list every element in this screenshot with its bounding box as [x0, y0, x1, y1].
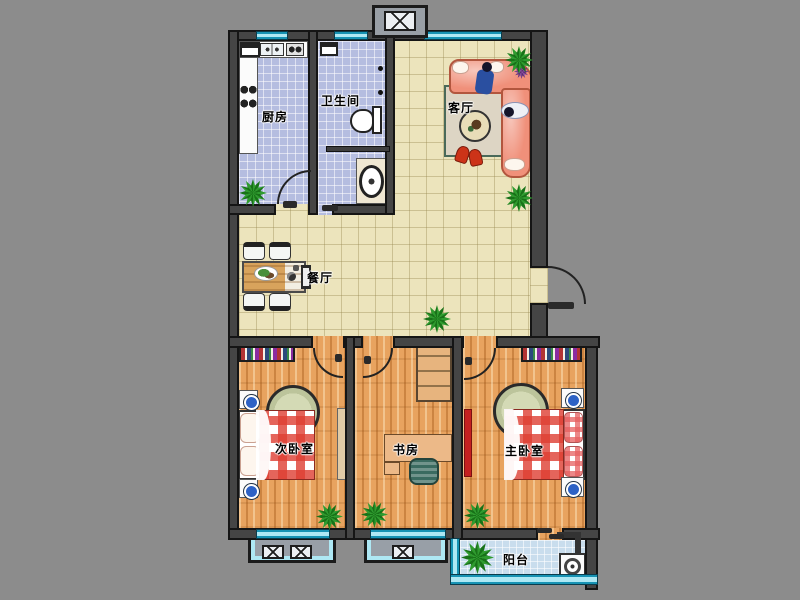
living-room-label: 客厅 — [448, 99, 474, 116]
nightstand — [561, 477, 584, 497]
wall-bath-living-divider — [385, 30, 395, 215]
sofa-pillow — [504, 158, 525, 171]
towel-hook-icon — [378, 90, 383, 95]
second-bedroom-label: 次卧室 — [275, 440, 314, 457]
wall-kitchen-south — [228, 204, 276, 215]
kitchen-window — [256, 31, 288, 40]
wall-right-upper — [530, 30, 548, 268]
balcony-window-south — [450, 574, 598, 585]
bathroom-label: 卫生间 — [321, 92, 360, 109]
wall-right-lower — [585, 336, 598, 590]
balcony-slider-leaf — [537, 528, 552, 533]
study-wardrobe — [416, 344, 452, 402]
bath-cabinet-icon — [320, 42, 338, 56]
bed-pillow — [564, 446, 583, 477]
wall-bedroom-divider-2 — [452, 336, 463, 540]
office-chair-icon — [409, 458, 439, 485]
toilet-bowl-icon — [350, 109, 374, 133]
bathroom-window — [334, 31, 368, 40]
wall-left — [228, 30, 239, 540]
entry-door-gap — [530, 268, 548, 303]
nightstand — [239, 479, 258, 498]
balcony-slider-leaf — [549, 534, 564, 539]
teapot-icon — [287, 272, 296, 281]
flue-symbol-icon — [384, 11, 416, 31]
range-hood-icon — [240, 42, 260, 57]
dining-room-label: 餐厅 — [307, 269, 333, 286]
wall-bath-partition — [326, 146, 390, 152]
dining-chair — [269, 293, 291, 311]
washing-machine-door — [564, 558, 581, 575]
person-head — [482, 62, 492, 72]
sofa-pillow — [452, 61, 469, 74]
towel-hook-icon — [378, 66, 383, 71]
person-head — [504, 107, 514, 117]
master-bedroom-label: 主卧室 — [505, 442, 544, 459]
red-cabinet — [464, 409, 472, 477]
study-door-handle — [364, 356, 371, 364]
ac-platform-icon — [392, 545, 414, 559]
nightstand — [561, 388, 584, 408]
wall-bedroom-divider-1 — [345, 336, 355, 540]
person-figure — [474, 69, 494, 95]
kitchen-label: 厨房 — [262, 108, 288, 125]
dining-chair — [243, 293, 265, 311]
ac-platform-icon — [262, 545, 284, 559]
entry-door-arc — [548, 266, 586, 304]
living-window — [424, 31, 502, 40]
bathroom-door-leaf — [322, 205, 338, 211]
study-window — [370, 529, 446, 539]
bed-pillow — [564, 412, 583, 443]
clock-icon — [566, 393, 581, 408]
gas-burner-icon — [240, 84, 257, 110]
master-door-handle — [465, 357, 472, 365]
entry-door-leaf — [548, 302, 574, 309]
balcony-label: 阳台 — [503, 551, 529, 568]
dining-chair — [243, 242, 265, 260]
food-plate-icon — [254, 266, 278, 281]
nightstand — [239, 390, 258, 409]
balcony-window-west — [450, 538, 460, 578]
balcony-partition — [575, 532, 581, 554]
study-label: 书房 — [393, 441, 419, 458]
washbasin-icon — [359, 165, 384, 198]
stove-icon — [286, 43, 304, 56]
desk-return — [384, 462, 400, 475]
lamp-icon — [244, 484, 259, 499]
kitchen-sink-icon — [260, 43, 284, 56]
wall-bedrooms-north — [228, 336, 313, 348]
floor-plan: 厨房 卫生间 客厅 餐厅 次卧室 书房 主卧室 阳台 — [0, 0, 800, 600]
bed-sheet-fold — [256, 410, 271, 480]
second-bedroom-door-handle — [335, 354, 342, 362]
cup-icon — [293, 265, 299, 271]
lamp-icon — [244, 395, 259, 410]
clock-icon — [566, 482, 581, 497]
second-bedroom-window — [256, 529, 330, 539]
wall-bedrooms-north — [496, 336, 600, 348]
kitchen-door-leaf — [283, 201, 297, 208]
dining-chair — [269, 242, 291, 260]
ac-platform-icon — [290, 545, 312, 559]
